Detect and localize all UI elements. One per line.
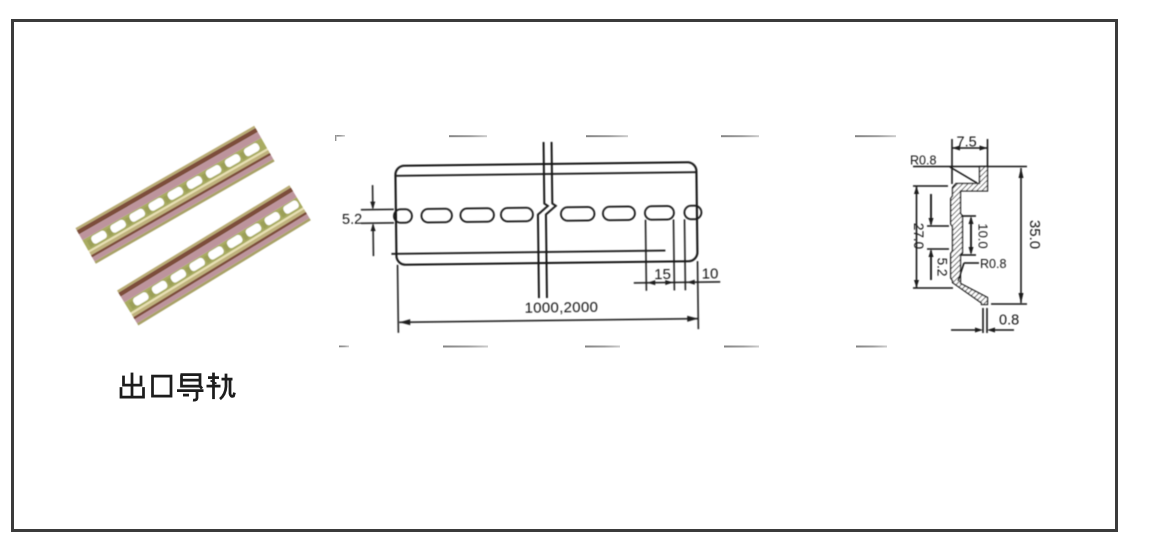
svg-text:35.0: 35.0 <box>1026 220 1043 249</box>
svg-text:R0.8: R0.8 <box>980 257 1006 271</box>
svg-text:7.5: 7.5 <box>957 135 977 151</box>
svg-text:15: 15 <box>654 266 671 283</box>
svg-text:5.2: 5.2 <box>342 212 362 228</box>
svg-text:5.2: 5.2 <box>935 258 950 277</box>
svg-text:R0.8: R0.8 <box>910 154 936 168</box>
svg-text:10: 10 <box>702 265 719 282</box>
svg-text:27.0: 27.0 <box>911 223 926 249</box>
svg-text:10.0: 10.0 <box>976 223 991 248</box>
svg-text:1000,2000: 1000,2000 <box>524 299 598 317</box>
svg-text:0.8: 0.8 <box>999 313 1019 329</box>
